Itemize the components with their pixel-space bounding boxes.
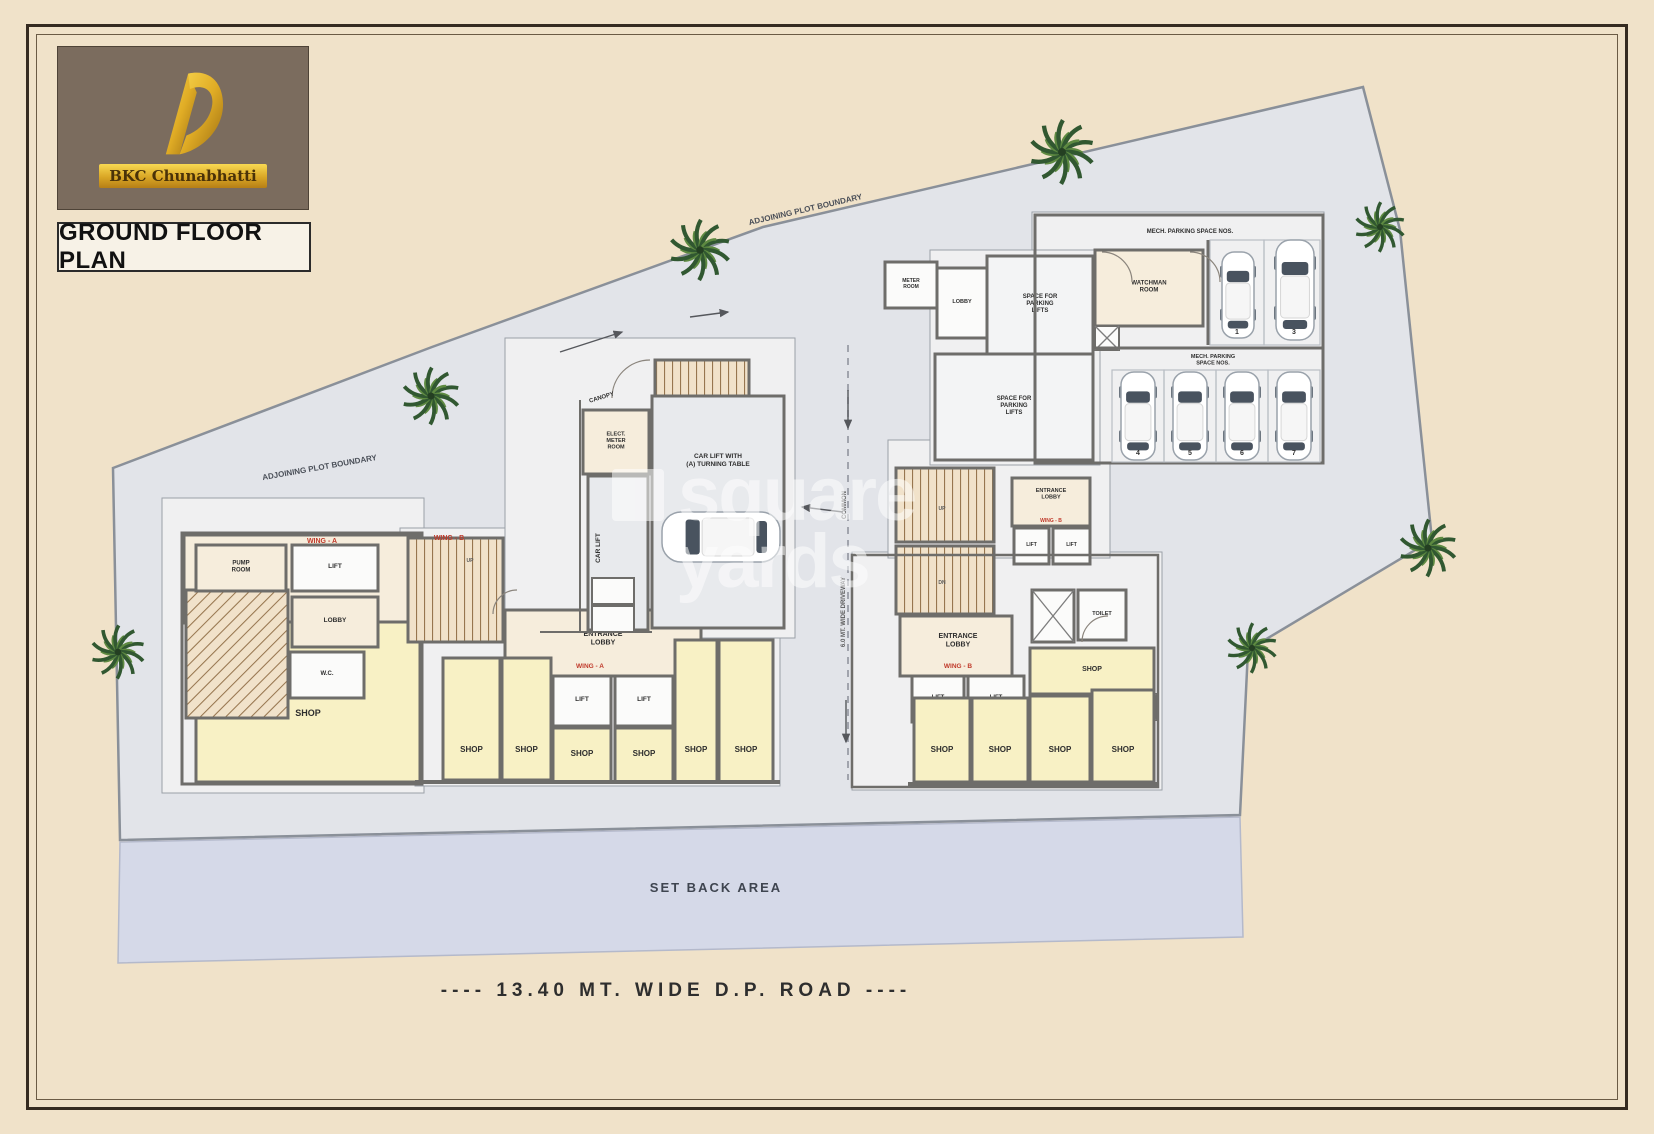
plan-label-22: SET BACK AREA <box>650 880 782 895</box>
car-3-roof <box>1125 404 1151 441</box>
car-7-rear-window <box>756 521 767 553</box>
plan-label-21: DN <box>938 580 946 586</box>
shop-2 <box>502 658 551 780</box>
palm-trunk <box>696 246 703 253</box>
plan-label-16: 7 <box>1292 450 1296 457</box>
developer-logo-panel: BKC Chunabhatti <box>57 46 309 210</box>
left-wing-shop-label: SHOP <box>295 708 321 718</box>
shop-5 <box>675 640 717 782</box>
car-2-roof <box>1281 276 1310 318</box>
plan-label-14: 5 <box>1188 450 1192 457</box>
center-stair <box>408 538 503 642</box>
car-1-rear-window <box>1228 321 1248 329</box>
core-stair <box>655 360 749 398</box>
shop-7-label: SHOP <box>931 745 954 754</box>
plan-label-6: WING - B <box>1040 518 1062 524</box>
plan-label-13: 4 <box>1136 450 1140 457</box>
center-lift-1-label: LIFT <box>575 696 589 703</box>
palm-trunk <box>1058 148 1066 156</box>
car-5-roof <box>1229 404 1255 441</box>
plan-label-8: CAR LIFT <box>595 533 602 563</box>
plan-title: GROUND FLOOR PLAN <box>57 222 311 272</box>
car-6-windshield <box>1282 391 1306 402</box>
shop-2-label: SHOP <box>515 745 538 754</box>
shop-9-label: SHOP <box>1049 745 1072 754</box>
plan-label-1: WING - A <box>307 538 337 545</box>
palm-trunk <box>427 392 434 399</box>
left-wing-pump-room-label: PUMPROOM <box>232 560 251 573</box>
plan-label-18: 6.0 MT. WIDE DRIVEWAY <box>841 577 847 647</box>
shop-1-label: SHOP <box>460 745 483 754</box>
palm-trunk <box>115 649 122 656</box>
shop-6 <box>719 640 773 782</box>
core-box-1 <box>592 578 634 604</box>
car-7-roof <box>702 518 754 556</box>
car-3-windshield <box>1126 391 1150 402</box>
car-7-windshield <box>686 520 700 555</box>
left-wing-wc-label: W.C. <box>321 671 334 677</box>
plan-label-15: 6 <box>1240 450 1244 457</box>
car-1-roof <box>1226 283 1250 319</box>
shop-10-label: SHOP <box>1112 745 1135 754</box>
plan-label-2: WING - B <box>434 535 464 542</box>
shop-6-label: SHOP <box>735 745 758 754</box>
shop-1 <box>443 658 500 780</box>
car-2-windshield <box>1282 262 1309 275</box>
shop-7 <box>914 698 970 782</box>
center-lift-2-label: LIFT <box>637 696 651 703</box>
shop-3-label: SHOP <box>571 749 594 758</box>
right-wing-shop-top-label: SHOP <box>1082 666 1102 673</box>
parking-lobby-label: LOBBY <box>952 299 972 305</box>
developer-logo-text: BKC Chunabhatti <box>99 164 267 188</box>
car-4-roof <box>1177 404 1203 441</box>
shop-5-label: SHOP <box>685 745 708 754</box>
left-wing-winding-stair <box>186 590 288 718</box>
core-meter-room-label: ELECT.METERROOM <box>606 431 626 450</box>
core-turntable-room-label: CAR LIFT WITH(A) TURNING TABLE <box>686 453 750 468</box>
right-wing-lift-1-label: LIFT <box>1026 542 1037 548</box>
shop-4-label: SHOP <box>633 749 656 758</box>
shop-10 <box>1092 690 1154 782</box>
plan-label-17: COMMON <box>842 491 848 519</box>
plan-label-3: WING - A <box>576 663 604 670</box>
plan-label-19: UP <box>467 558 475 564</box>
plan-label-5: WING - B <box>944 663 972 670</box>
car-2-rear-window <box>1283 320 1307 329</box>
shop-9 <box>1030 696 1090 782</box>
floor-plan-page: SHOPPUMPROOMLIFTLOBBYW.C.ENTRANCELOBBYLI… <box>0 0 1654 1134</box>
shop-8 <box>972 698 1028 782</box>
shop-8-label: SHOP <box>989 745 1012 754</box>
plan-label-11: 1 <box>1235 329 1239 336</box>
plan-label-10: MECH. PARKINGSPACE NOS. <box>1191 354 1235 367</box>
car-1-windshield <box>1227 271 1249 282</box>
right-wing-lift-2-label: LIFT <box>1066 542 1077 548</box>
right-wing-stair-1 <box>896 468 994 542</box>
plan-label-12: 3 <box>1292 329 1296 336</box>
palm-trunk <box>1377 224 1383 230</box>
palm-trunk <box>1424 544 1431 551</box>
plan-label-20: UP <box>939 506 947 512</box>
palm-trunk <box>1249 645 1255 651</box>
left-wing-lobby-label: LOBBY <box>324 617 347 624</box>
car-4-windshield <box>1178 391 1202 402</box>
core-box-2 <box>592 606 634 632</box>
logo-monogram-icon <box>140 68 226 160</box>
car-6-roof <box>1281 404 1307 441</box>
left-wing-lift-label: LIFT <box>328 563 342 570</box>
plan-label-9: MECH. PARKING SPACE NOS. <box>1147 229 1234 235</box>
parking-meter-room-label: METERROOM <box>902 278 920 290</box>
car-5-windshield <box>1230 391 1254 402</box>
plan-label-25: ---- 13.40 MT. WIDE D.P. ROAD ---- <box>441 980 912 1001</box>
